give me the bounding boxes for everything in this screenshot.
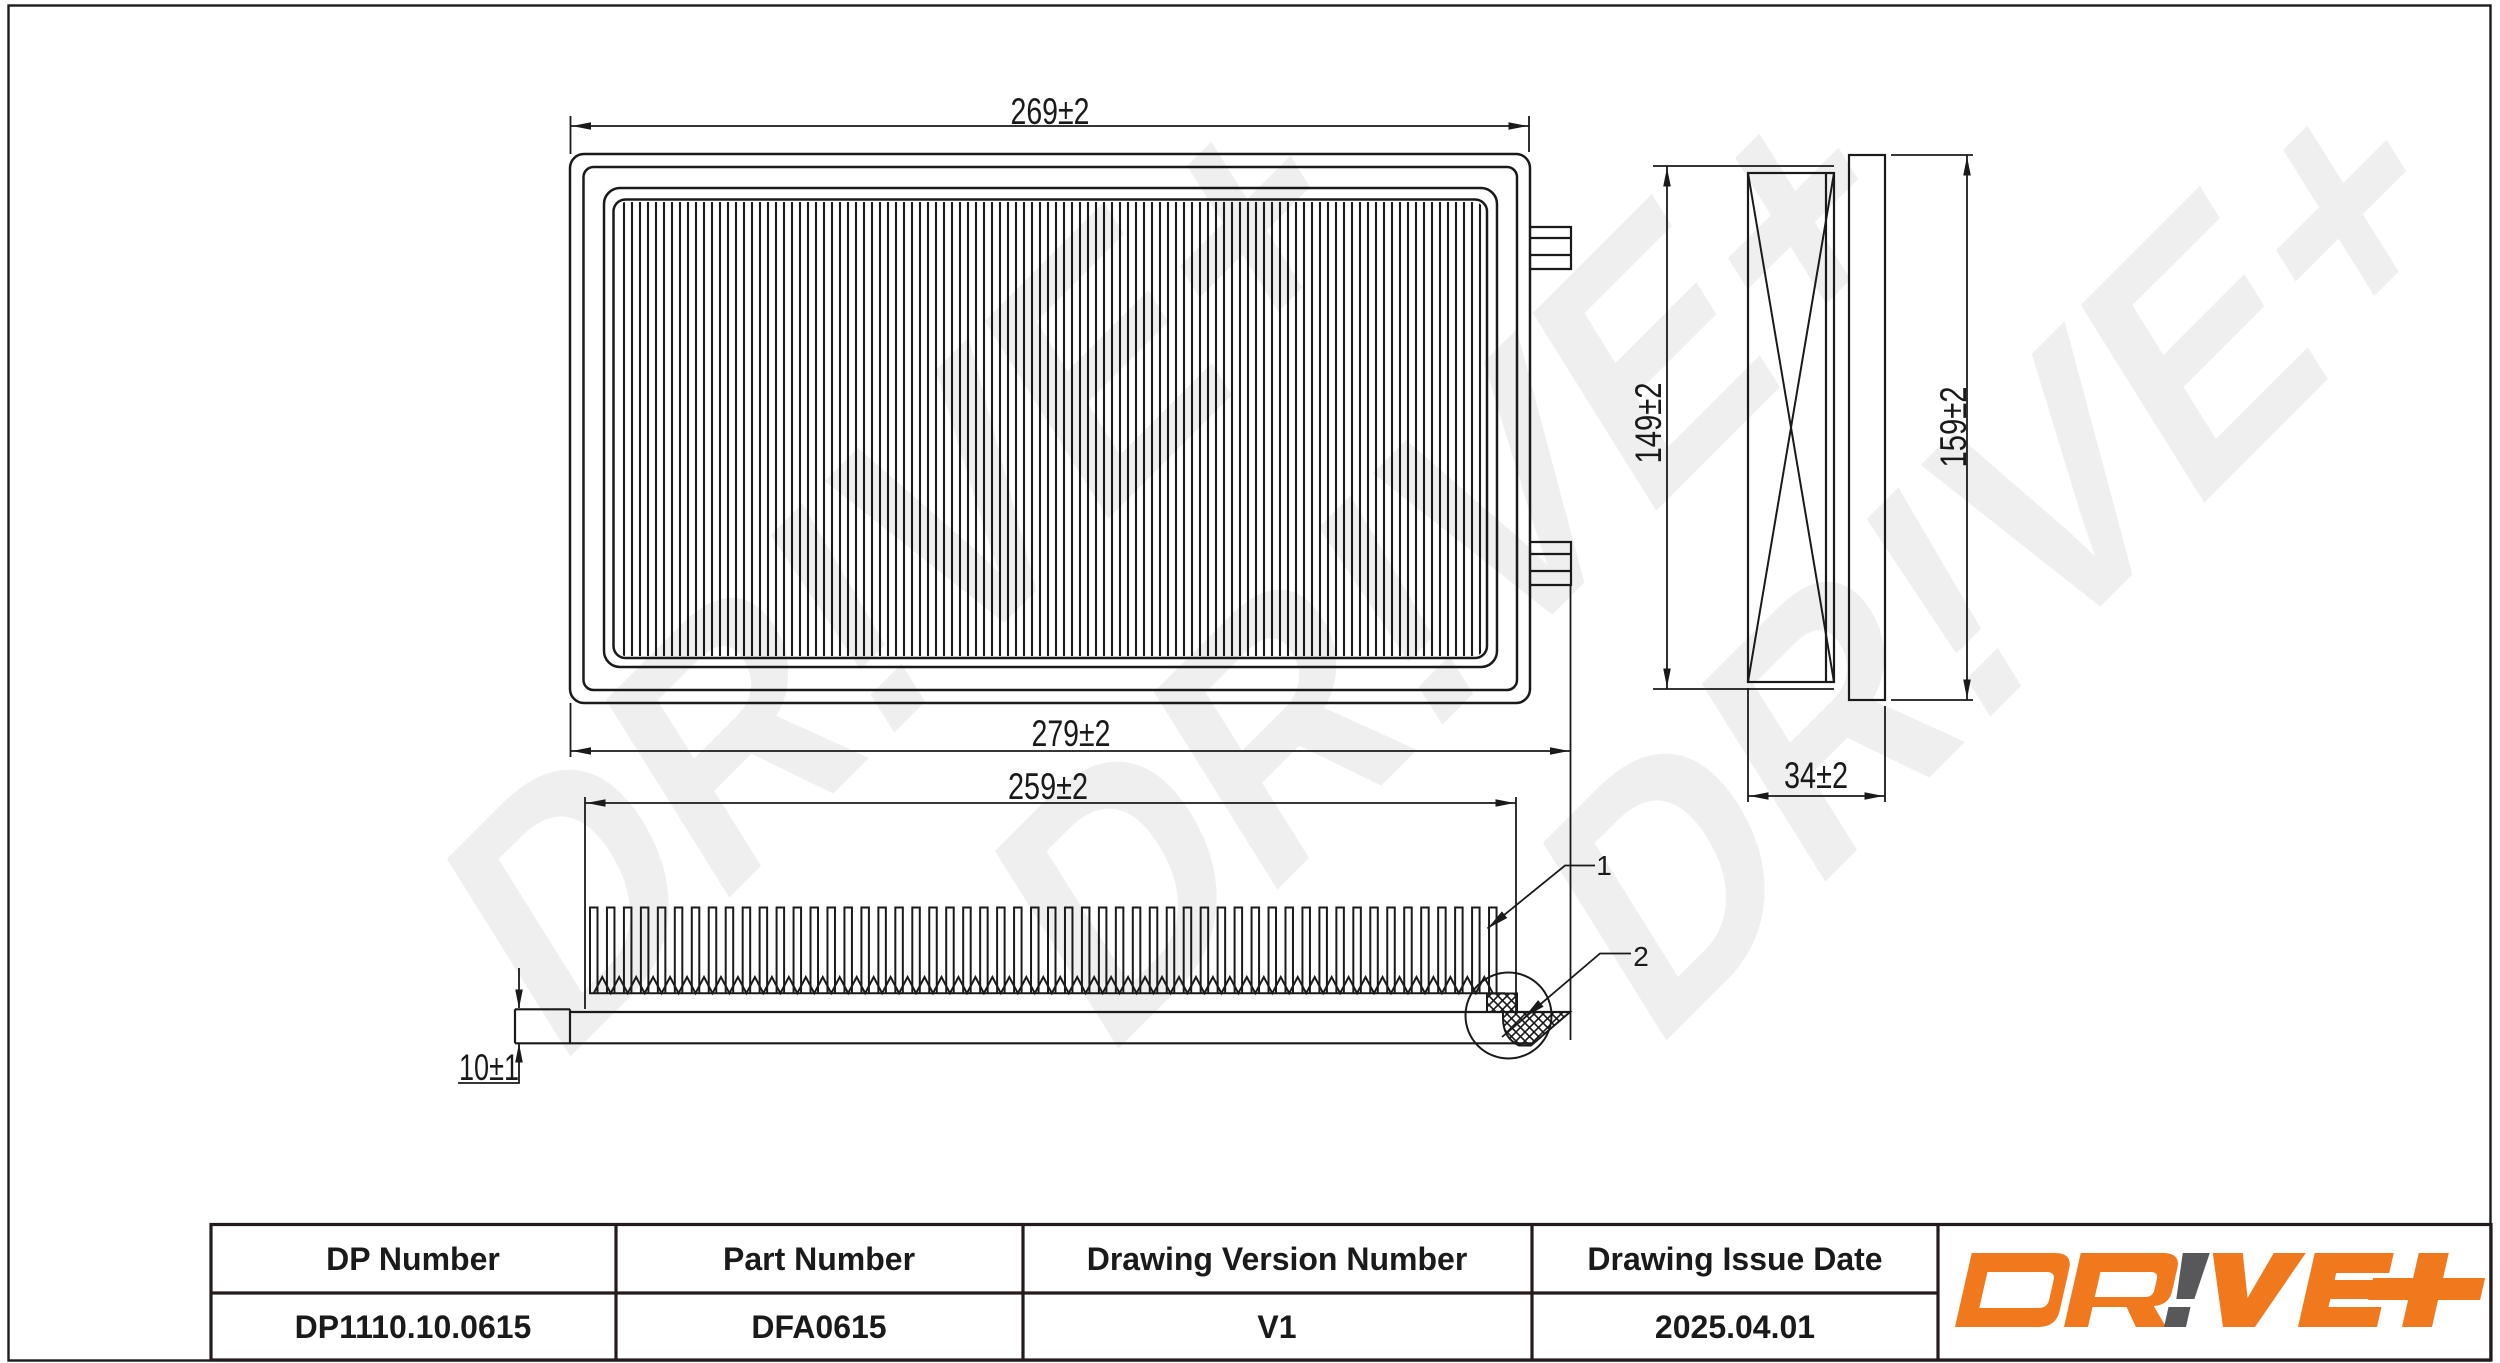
svg-text:2: 2 [1633, 941, 1649, 972]
svg-text:2025.04.01: 2025.04.01 [1655, 1309, 1815, 1345]
svg-text:Drawing Issue Date: Drawing Issue Date [1587, 1241, 1882, 1277]
svg-text:1: 1 [1596, 850, 1612, 881]
svg-text:259±2: 259±2 [1008, 766, 1088, 807]
svg-text:269±2: 269±2 [1011, 91, 1090, 132]
svg-text:DP Number: DP Number [326, 1241, 500, 1277]
svg-text:DFA0615: DFA0615 [751, 1309, 886, 1345]
svg-text:159±2: 159±2 [1933, 387, 1974, 468]
svg-text:DP1110.10.0615: DP1110.10.0615 [295, 1309, 532, 1345]
svg-text:34±2: 34±2 [1784, 755, 1848, 796]
svg-text:10±1: 10±1 [459, 1047, 519, 1088]
svg-text:149±2: 149±2 [1628, 383, 1669, 464]
svg-text:Drawing Version Number: Drawing Version Number [1087, 1241, 1468, 1277]
svg-text:V1: V1 [1257, 1309, 1296, 1345]
svg-text:Part Number: Part Number [723, 1241, 915, 1277]
svg-text:279±2: 279±2 [1032, 713, 1111, 754]
